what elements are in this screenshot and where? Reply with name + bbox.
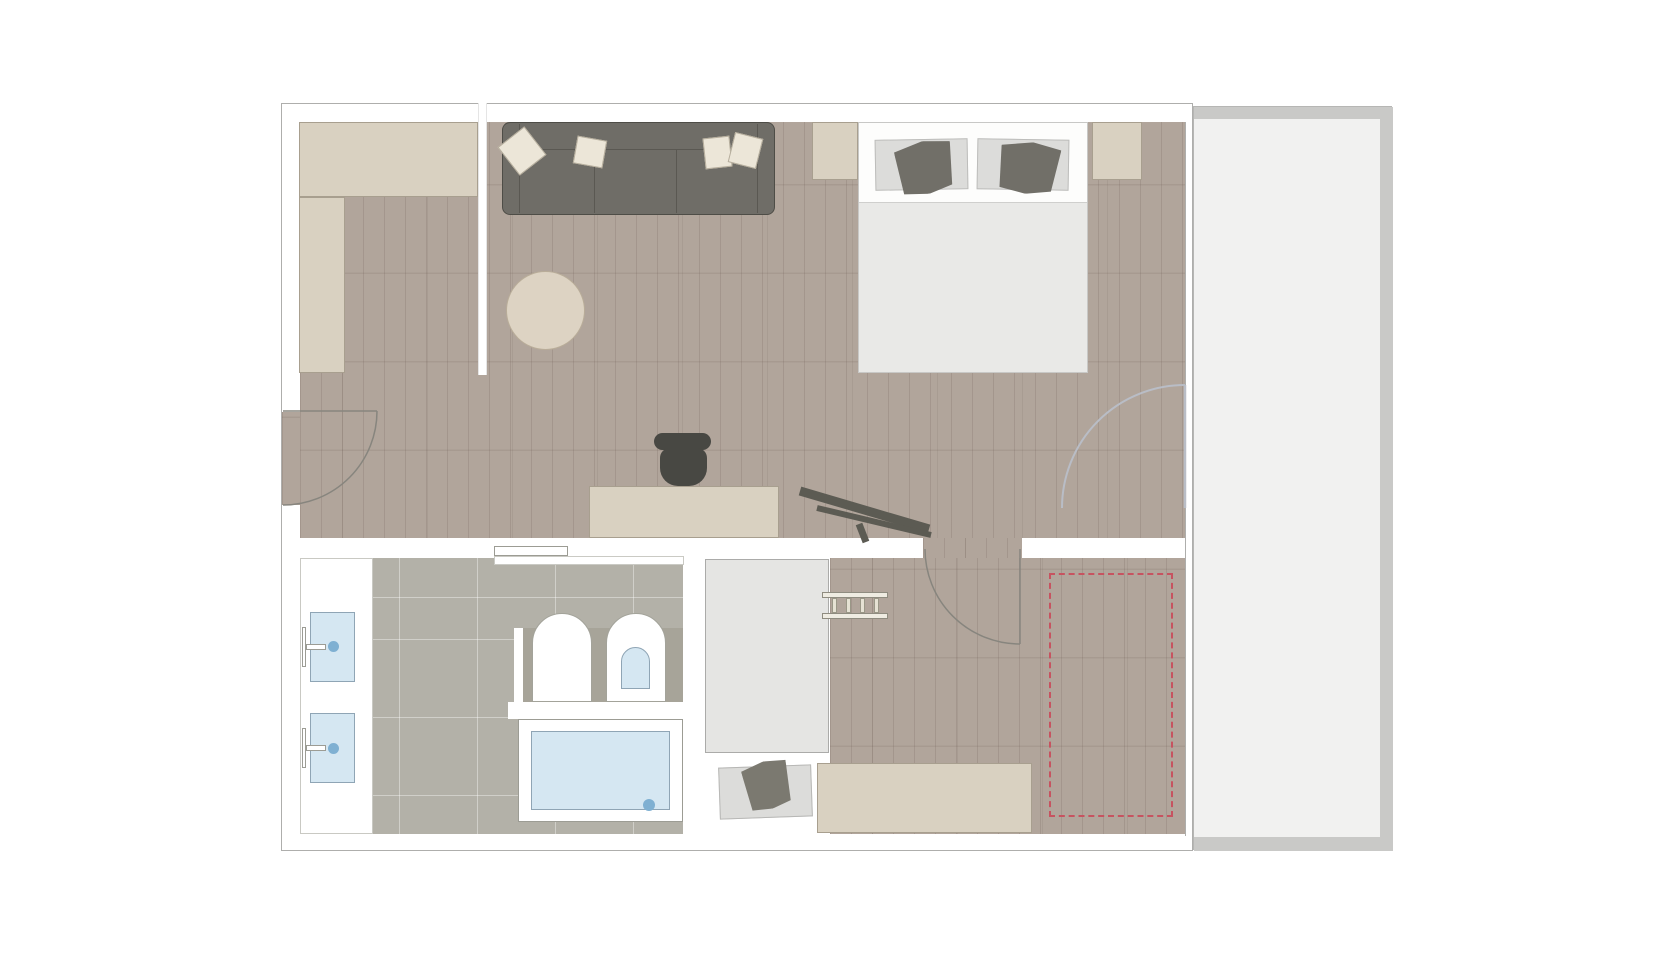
lounge-chair [800, 491, 931, 542]
entrance-door-arc [283, 411, 377, 505]
door-swing-overlay [0, 0, 1680, 960]
balcony-door-arc [1062, 385, 1185, 508]
bedroom-door-arc [925, 549, 1020, 644]
floor-plan-canvas [0, 0, 1680, 960]
